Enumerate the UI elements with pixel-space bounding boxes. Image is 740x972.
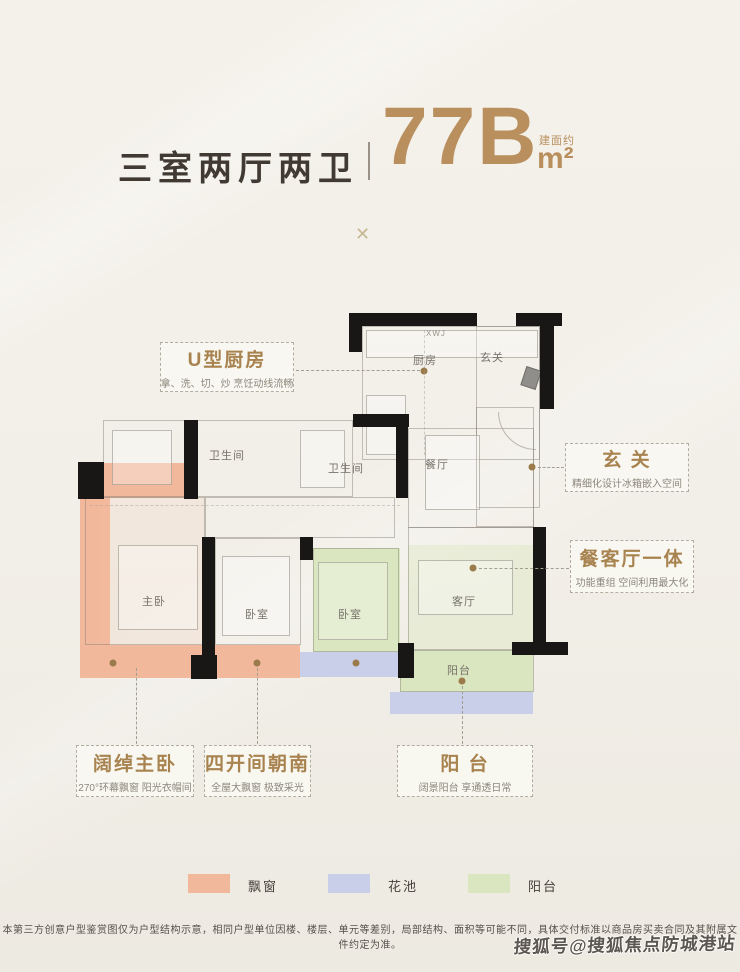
bathroom2-fixture	[300, 430, 345, 488]
construction-line	[90, 505, 400, 506]
connector-line	[479, 568, 569, 569]
callout-title: 四开间朝南	[205, 749, 310, 776]
room-label-bedroom-3: 卧室	[338, 606, 362, 622]
room-label-living-room: 客厅	[452, 593, 476, 609]
callout-subtitle: 阔景阳台 享通透日常	[419, 779, 512, 794]
page-title: 三室两厅两卫	[118, 141, 358, 190]
callout-south-facing: 四开间朝南 全屋大飘窗 极致采光	[204, 745, 311, 797]
connector-dot	[353, 660, 360, 667]
legend-label-bay-window: 飘窗	[248, 876, 278, 895]
callout-title: U型厨房	[188, 345, 267, 372]
callout-title: 玄 关	[602, 445, 651, 472]
legend-swatch-flower-bed	[328, 874, 370, 893]
area-unit: m²	[537, 142, 574, 176]
room-label-bathroom-2: 卫生间	[328, 460, 364, 476]
callout-kitchen: U型厨房 拿、洗、切、炒 烹饪动线流畅	[160, 342, 294, 392]
callout-subtitle: 全屋大飘窗 极致采光	[211, 779, 304, 794]
callout-title: 阳 台	[440, 749, 489, 776]
wall	[398, 643, 414, 678]
construction-line	[424, 330, 425, 455]
callout-title: 阔绰主卧	[93, 749, 177, 776]
room-label-bedroom-2: 卧室	[245, 606, 269, 622]
dining-table	[425, 435, 480, 510]
callout-subtitle: 精细化设计冰箱嵌入空间	[572, 475, 682, 490]
connector-line	[462, 686, 463, 744]
appliance-tag: XWJ	[426, 329, 446, 338]
poster: 三室两厅两卫 77B 建面约 m² ✕	[0, 0, 740, 972]
watermark-text: 搜狐号@搜狐焦点防城港站	[513, 930, 737, 959]
wall	[396, 414, 408, 498]
wall	[349, 313, 477, 326]
wall	[78, 462, 104, 499]
connector-line	[296, 370, 420, 371]
construction-line	[410, 527, 532, 528]
callout-balcony: 阳 台 阔景阳台 享通透日常	[397, 745, 533, 797]
wall	[349, 313, 362, 352]
callout-subtitle: 270°环幕飘窗 阳光衣帽间	[78, 779, 191, 794]
room-label-kitchen: 厨房	[413, 352, 437, 368]
connector-dot	[254, 660, 261, 667]
legend-label-flower-bed: 花池	[388, 876, 418, 895]
legend-swatch-bay-window	[188, 874, 230, 893]
unit-code: 77B	[382, 96, 538, 178]
bathroom1-fixture	[112, 430, 172, 485]
title-divider	[368, 142, 370, 180]
callout-dining-living: 餐客厅一体 功能重组 空间利用最大化	[570, 540, 694, 593]
connector-dot	[470, 565, 477, 572]
connector-line	[538, 467, 564, 468]
room-label-foyer: 玄关	[480, 349, 504, 365]
connector-line	[136, 668, 137, 744]
decor-cross-icon: ✕	[355, 224, 370, 245]
master-bed	[118, 545, 198, 630]
kitchen-counter	[366, 330, 538, 358]
callout-foyer: 玄 关 精细化设计冰箱嵌入空间	[565, 443, 689, 492]
wall	[516, 313, 562, 326]
connector-dot	[110, 660, 117, 667]
room-label-dining: 餐厅	[425, 456, 449, 472]
wall	[191, 655, 217, 679]
room-label-bathroom-1: 卫生间	[209, 447, 245, 463]
wall	[540, 313, 554, 409]
connector-dot	[459, 678, 466, 685]
callout-master-bedroom: 阔绰主卧 270°环幕飘窗 阳光衣帽间	[76, 745, 194, 797]
wall	[202, 537, 215, 659]
wall	[184, 420, 198, 499]
bedroom2-bed	[222, 556, 290, 636]
room-label-balcony: 阳台	[447, 662, 471, 678]
callout-subtitle: 功能重组 空间利用最大化	[576, 574, 689, 589]
wall	[533, 527, 546, 654]
callout-title: 餐客厅一体	[579, 544, 684, 571]
connector-dot	[529, 464, 536, 471]
wall	[300, 537, 313, 560]
room-label-master-bedroom: 主卧	[142, 593, 166, 609]
callout-subtitle: 拿、洗、切、炒 烹饪动线流畅	[161, 375, 294, 390]
connector-line	[257, 668, 258, 744]
flower-bed-fill-left	[300, 652, 400, 677]
wall	[512, 642, 568, 655]
hallway-outline	[205, 497, 395, 538]
legend-label-balcony: 阳台	[528, 876, 558, 895]
bedroom3-bed	[318, 562, 388, 640]
legend-swatch-balcony	[468, 874, 510, 893]
